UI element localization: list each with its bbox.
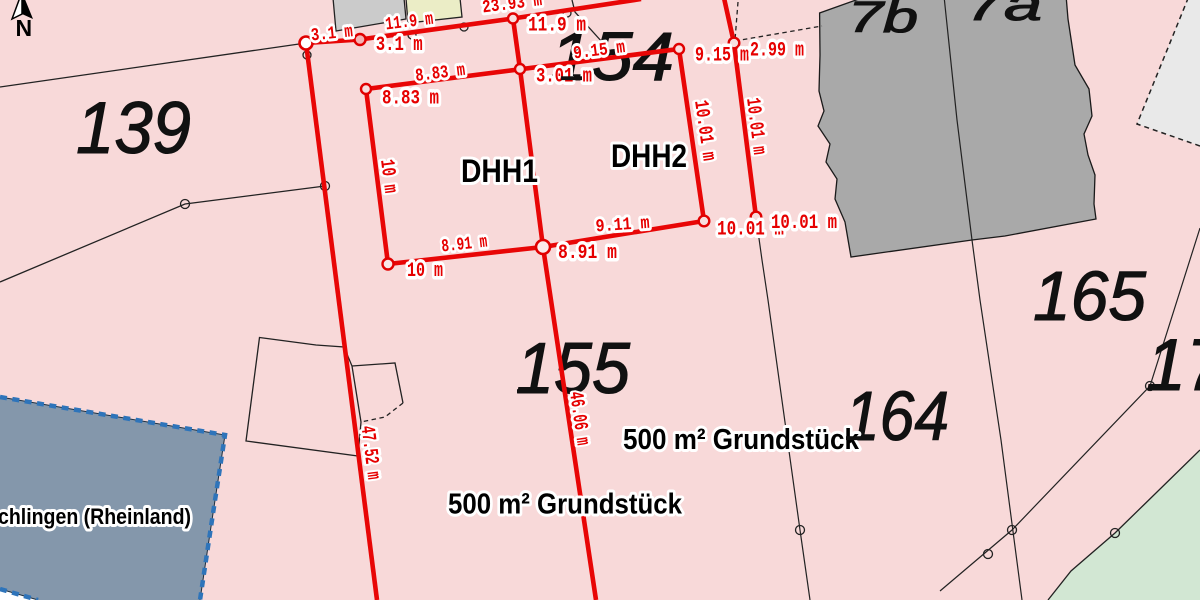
- svg-text:DHH2: DHH2: [611, 138, 687, 174]
- svg-text:11.9 m: 11.9 m: [528, 15, 586, 38]
- svg-text:N: N: [16, 15, 33, 41]
- svg-text:8.91 m: 8.91 m: [558, 242, 617, 265]
- svg-text:139: 139: [76, 88, 191, 169]
- svg-text:500 m² Grundstück: 500 m² Grundstück: [448, 489, 683, 521]
- svg-text:500 m² Grundstück: 500 m² Grundstück: [623, 424, 860, 456]
- svg-text:9.11 m: 9.11 m: [595, 214, 650, 238]
- svg-text:10.01 m: 10.01 m: [771, 212, 837, 235]
- svg-text:17: 17: [1146, 325, 1200, 406]
- svg-text:7a: 7a: [966, 0, 1042, 30]
- svg-text:7b: 7b: [848, 0, 918, 42]
- svg-text:10 m: 10 m: [374, 158, 401, 195]
- svg-text:10 m: 10 m: [407, 260, 443, 283]
- svg-text:DHH1: DHH1: [461, 153, 538, 189]
- svg-text:8.83 m: 8.83 m: [382, 88, 439, 111]
- svg-text:164: 164: [845, 377, 949, 455]
- svg-text:3.1 m: 3.1 m: [376, 34, 423, 57]
- svg-text:165: 165: [1033, 257, 1147, 335]
- svg-text:9.15 m: 9.15 m: [695, 45, 749, 68]
- svg-text:chlingen (Rheinland): chlingen (Rheinland): [0, 504, 191, 529]
- svg-text:2.99 m: 2.99 m: [750, 40, 804, 63]
